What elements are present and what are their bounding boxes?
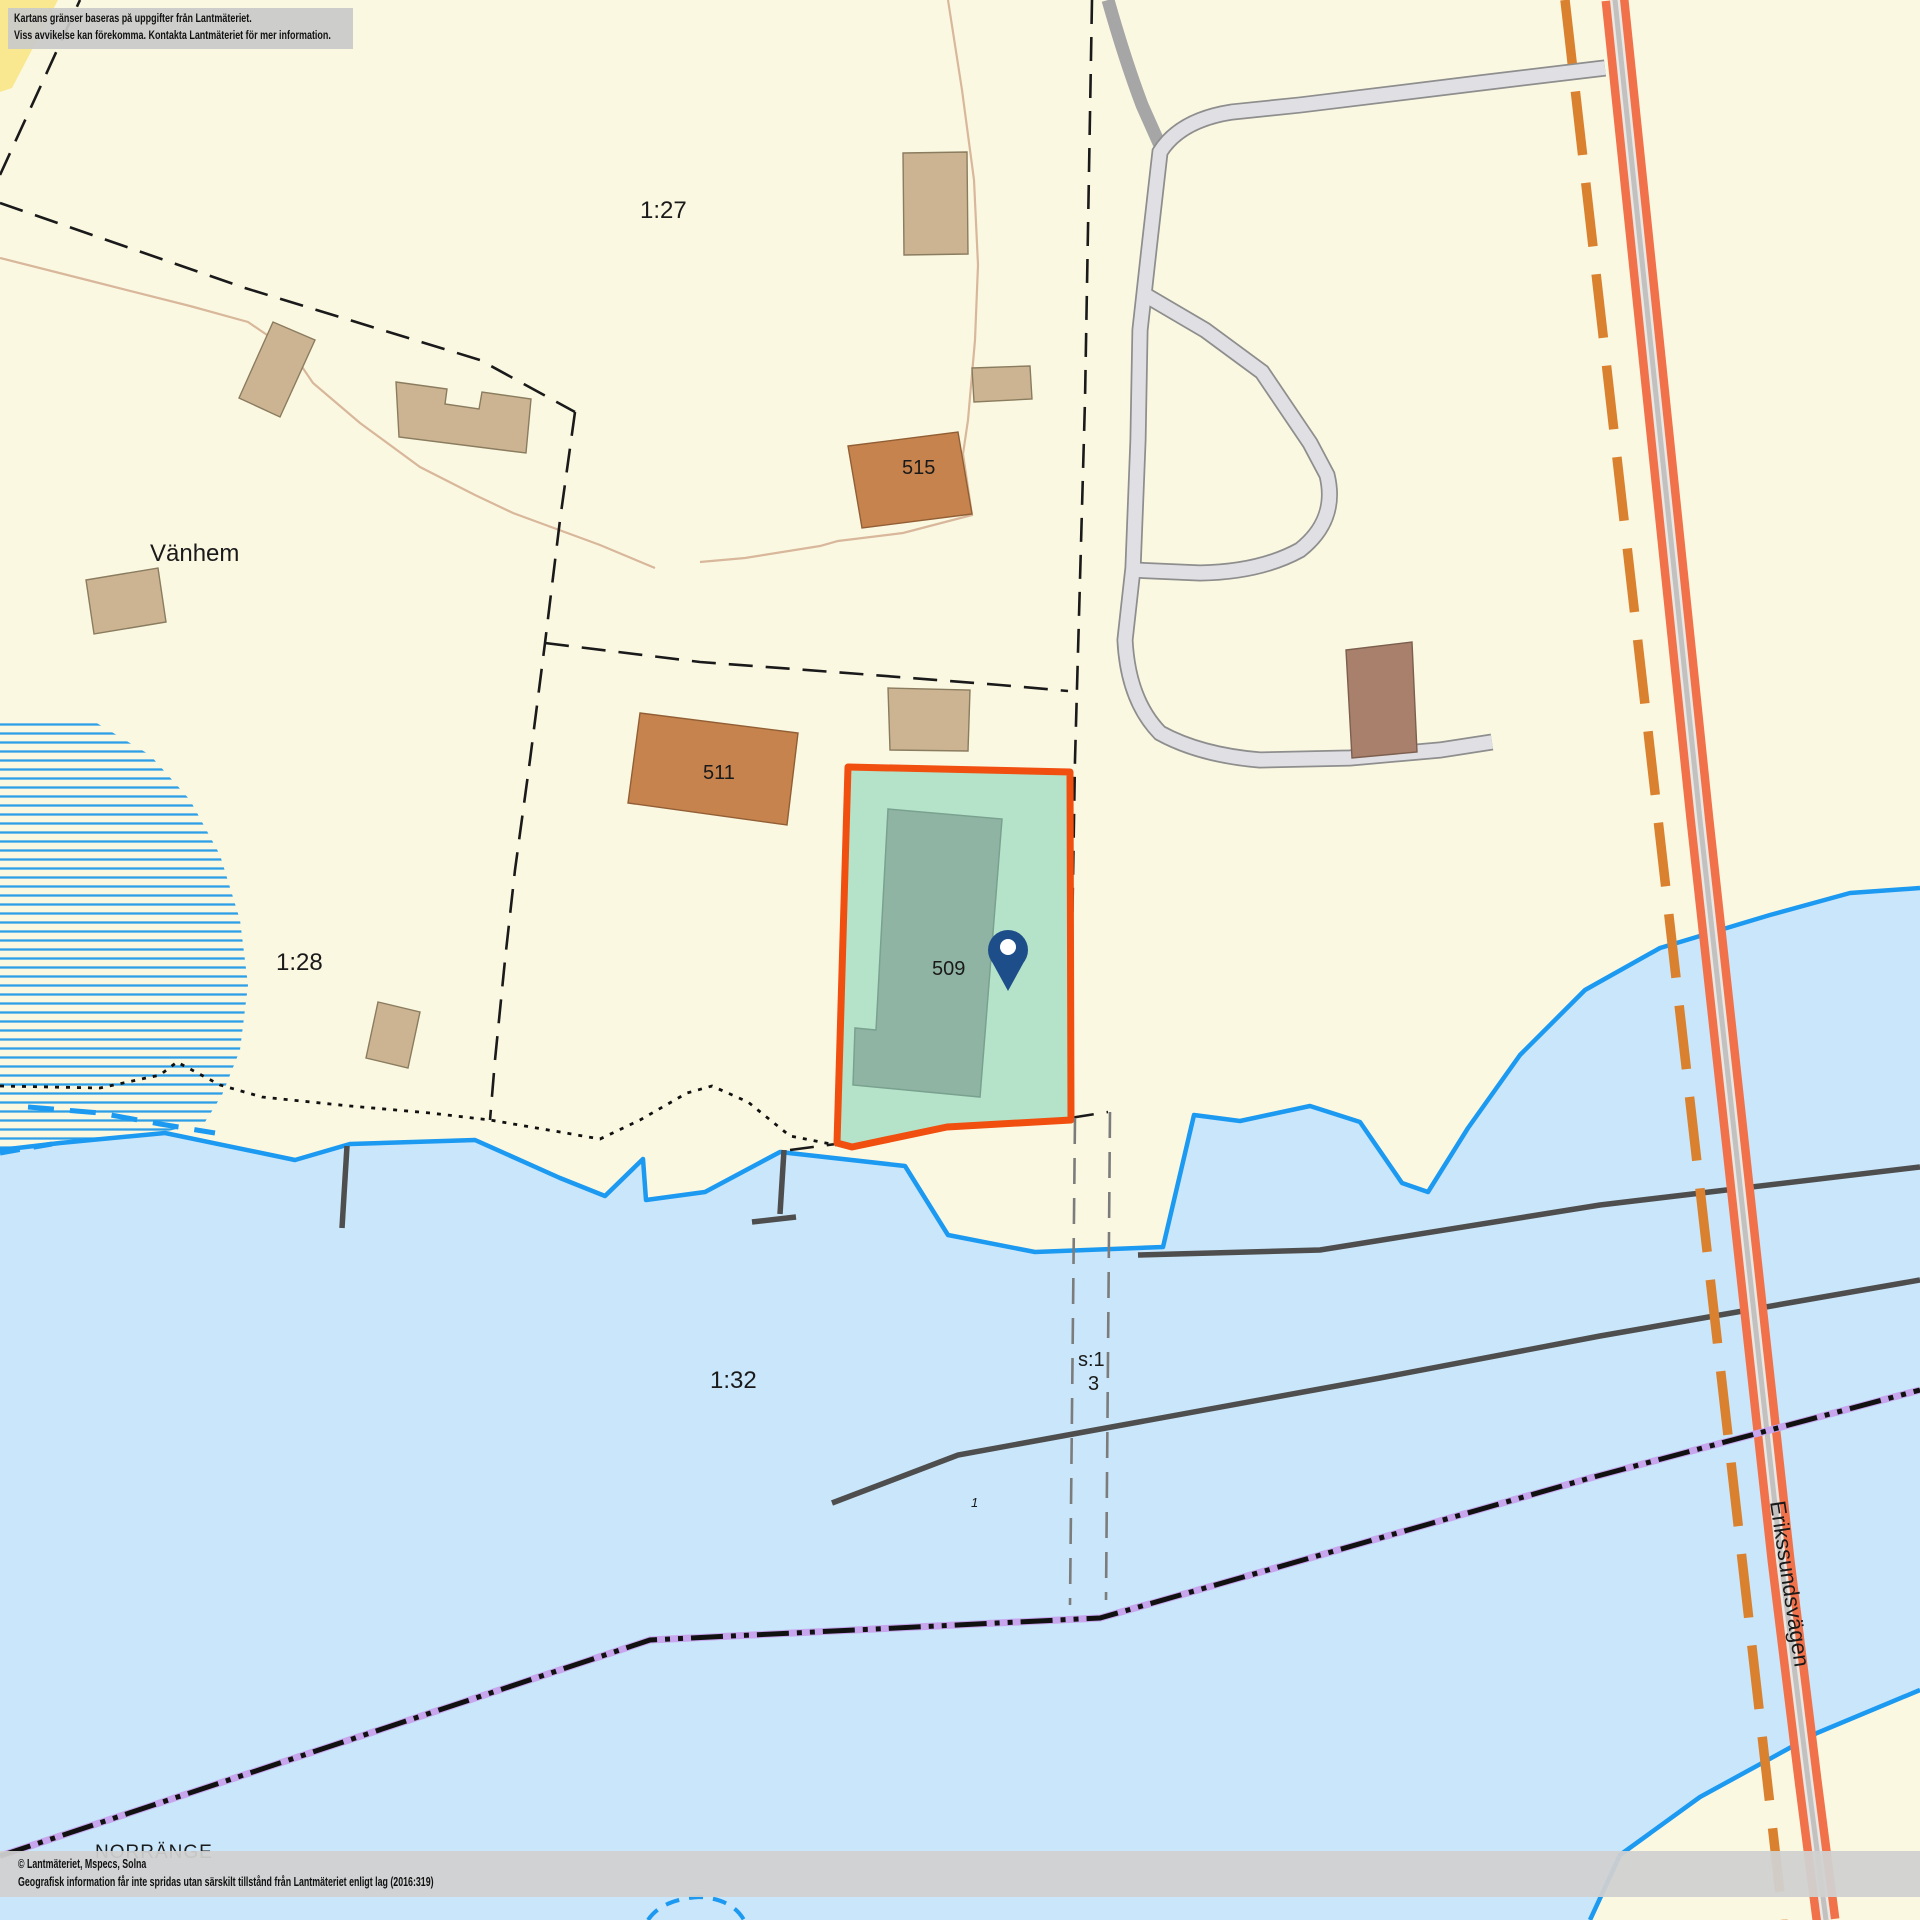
map-screenshot: 1:27 Vänhem 515 511 509 1:28 1:32 s:1 3 … <box>0 0 1920 1920</box>
label-water-marker-1: 1 <box>971 1495 978 1510</box>
attribution-bar: © Lantmäteriet, Mspecs, Solna Geografisk… <box>0 1851 1920 1897</box>
attribution-line-1: © Lantmäteriet, Mspecs, Solna <box>18 1855 1311 1873</box>
disclaimer-line-1: Kartans gränser baseras på uppgifter frå… <box>14 11 274 28</box>
building-515 <box>848 432 972 528</box>
disclaimer-line-2: Viss avvikelse kan förekomma. Kontakta L… <box>14 28 274 45</box>
label-parcel-1-28: 1:28 <box>276 949 323 976</box>
label-parcel-s1: s:1 <box>1078 1349 1105 1371</box>
building-vanhem-small <box>86 568 166 634</box>
building-tan-small <box>972 366 1032 402</box>
label-parcel-1-32: 1:32 <box>710 1367 757 1394</box>
map-disclaimer-box: Kartans gränser baseras på uppgifter frå… <box>8 8 353 49</box>
building-tan-north <box>903 152 968 255</box>
parcel-509-highlight[interactable] <box>837 767 1071 1147</box>
label-building-515: 515 <box>902 457 935 479</box>
label-parcel-s1-sub: 3 <box>1088 1373 1099 1395</box>
map-canvas[interactable]: 1:27 Vänhem 515 511 509 1:28 1:32 s:1 3 … <box>0 0 1920 1920</box>
building-tan-near-511 <box>888 688 970 751</box>
label-place-vanhem: Vänhem <box>150 540 239 567</box>
label-building-509: 509 <box>932 958 965 980</box>
building-mauve-east <box>1346 642 1417 758</box>
label-parcel-1-27: 1:27 <box>640 197 687 224</box>
label-building-511: 511 <box>703 762 735 784</box>
attribution-line-2: Geografisk information får inte spridas … <box>18 1873 1311 1891</box>
